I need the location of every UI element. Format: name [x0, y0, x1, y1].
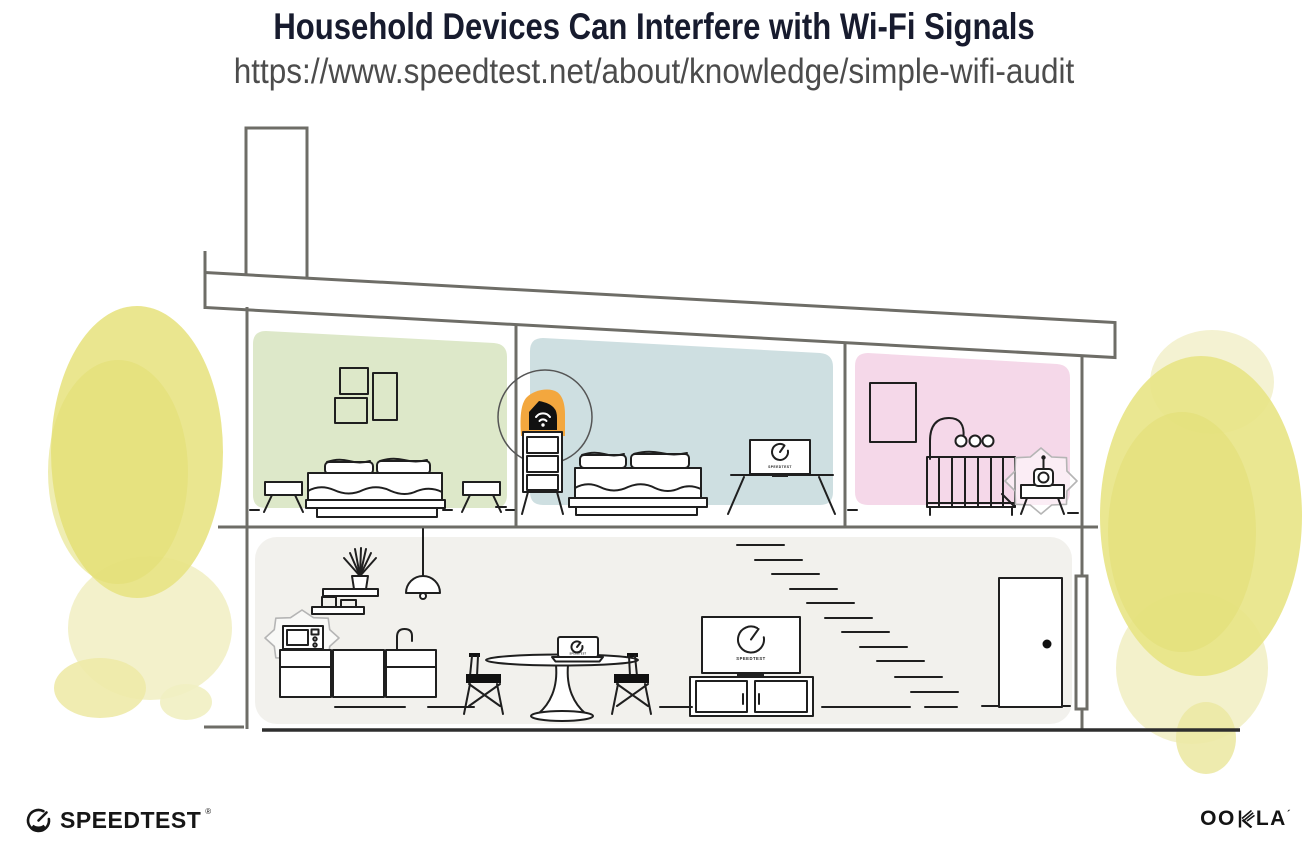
speedtest-logo: SPEEDTEST ®: [25, 806, 211, 834]
right-wall-panel: [1076, 576, 1087, 709]
speedtest-gauge-icon: [25, 806, 53, 834]
tv-area: SPEEDTEST: [690, 617, 813, 716]
registered-mark: ®: [205, 807, 211, 816]
microwave-icon: [283, 626, 323, 649]
front-door: [999, 578, 1062, 707]
ookla-k-glyph: [1238, 810, 1255, 828]
laptop-screen-label: SPEEDTEST: [570, 653, 587, 656]
media-console: [690, 677, 813, 716]
tree-left: [48, 306, 232, 720]
desktop-monitor: SPEEDTEST: [750, 440, 810, 477]
kitchen-cabinets: [280, 650, 436, 697]
chimney: [246, 128, 307, 280]
ookla-logo: OO LA ´: [1200, 810, 1292, 828]
laptop-icon: SPEEDTEST: [552, 637, 603, 662]
speedtest-logo-text: SPEEDTEST: [60, 807, 201, 834]
house-illustration: SPEEDTEST: [0, 0, 1308, 861]
tv-screen: [702, 617, 800, 673]
tv-screen-label: SPEEDTEST: [736, 656, 765, 661]
ookla-logo-text-left: OO: [1200, 810, 1236, 828]
bed-blue: [569, 452, 707, 515]
trademark-tick: ´: [1287, 806, 1292, 824]
door-knob: [1043, 640, 1052, 649]
monitor-screen-label: SPEEDTEST: [768, 465, 792, 469]
ookla-logo-text-right: LA: [1256, 810, 1287, 828]
tree-right: [1100, 330, 1302, 774]
baby-monitor-area: [1005, 448, 1077, 514]
infographic-page: Household Devices Can Interfere with Wi-…: [0, 0, 1308, 861]
